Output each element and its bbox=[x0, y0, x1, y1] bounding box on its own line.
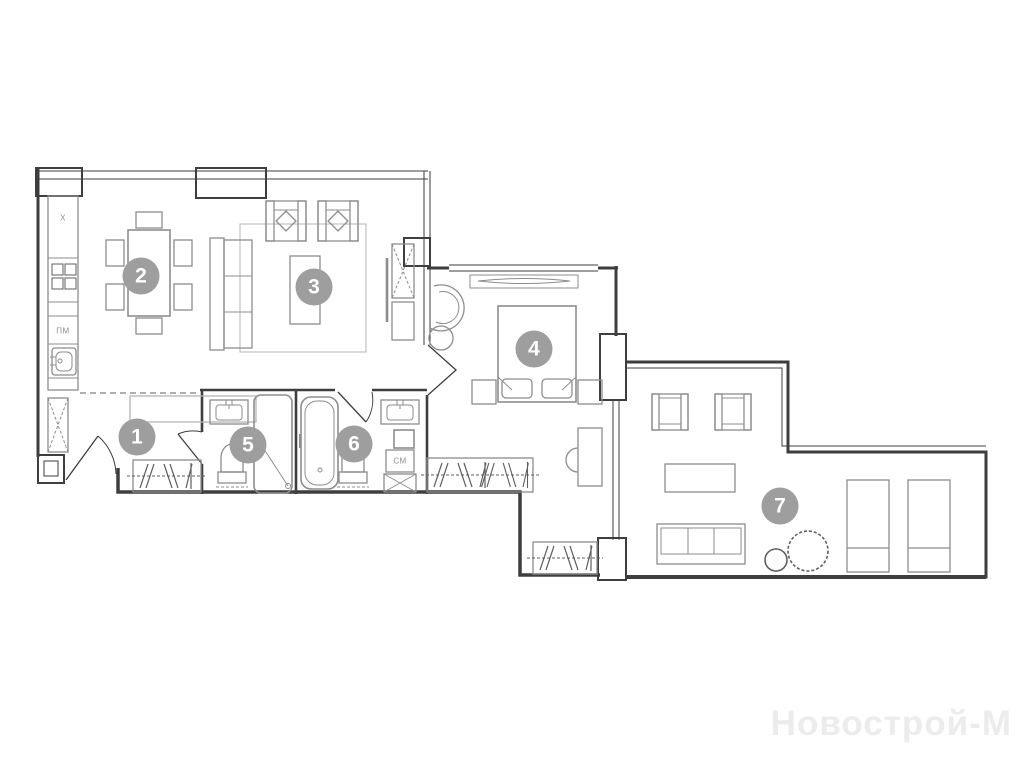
sun-lounger bbox=[847, 480, 889, 572]
bathroom-door bbox=[178, 431, 202, 464]
watermark: Новострой-М bbox=[771, 704, 1012, 744]
armchair bbox=[318, 201, 358, 241]
sun-lounger bbox=[908, 480, 950, 572]
fridge-label: Х bbox=[60, 214, 66, 223]
room-marker-3: 3 bbox=[296, 269, 333, 306]
hall-wardrobe bbox=[48, 398, 68, 452]
nightstand bbox=[578, 380, 602, 404]
bedroom-wardrobe bbox=[527, 542, 603, 574]
sink-icon bbox=[381, 400, 419, 424]
entrance-door bbox=[66, 436, 116, 480]
bathtub bbox=[301, 397, 338, 489]
room-marker-6: 6 bbox=[336, 426, 373, 463]
terrace-armchair bbox=[715, 394, 751, 430]
room-marker-4: 4 bbox=[516, 331, 553, 368]
radiator bbox=[470, 275, 578, 288]
wc-door bbox=[338, 392, 373, 422]
room-marker-7: 7 bbox=[762, 488, 799, 525]
desk-chair bbox=[566, 448, 578, 472]
washer-label: СМ bbox=[393, 457, 406, 466]
bedroom-furniture bbox=[421, 275, 603, 574]
plant-icon bbox=[788, 531, 828, 571]
dishwasher-label: ПМ bbox=[56, 327, 69, 336]
sink-icon bbox=[210, 400, 248, 424]
terrace-table bbox=[665, 464, 735, 492]
nightstand bbox=[472, 380, 496, 404]
floor-plan-page: 1234567ХПМСМ Новострой-М bbox=[0, 0, 1024, 768]
walls bbox=[36, 168, 986, 580]
stove-icon bbox=[52, 264, 76, 289]
cabinet bbox=[394, 430, 414, 448]
floor-plan-drawing bbox=[0, 0, 1024, 768]
kitchen-sink-icon bbox=[50, 348, 76, 375]
sofa bbox=[210, 238, 252, 350]
bedroom-double-door bbox=[428, 345, 456, 395]
terrace-sofa bbox=[657, 524, 745, 564]
desk bbox=[578, 428, 602, 486]
tv-stand bbox=[392, 302, 414, 340]
room-marker-2: 2 bbox=[123, 258, 160, 295]
floor-hatch bbox=[384, 474, 416, 492]
corridor-wardrobe bbox=[421, 458, 539, 492]
kitchen-furniture bbox=[48, 196, 192, 390]
terrace-furniture bbox=[652, 394, 950, 572]
armchair bbox=[266, 201, 306, 241]
bedroom-armchair bbox=[430, 285, 464, 331]
terrace-armchair bbox=[652, 394, 688, 430]
side-table bbox=[429, 326, 453, 350]
room-marker-1: 1 bbox=[119, 419, 156, 456]
plant-icon bbox=[765, 549, 787, 571]
coat-rack bbox=[127, 460, 207, 492]
room-marker-5: 5 bbox=[230, 427, 267, 464]
